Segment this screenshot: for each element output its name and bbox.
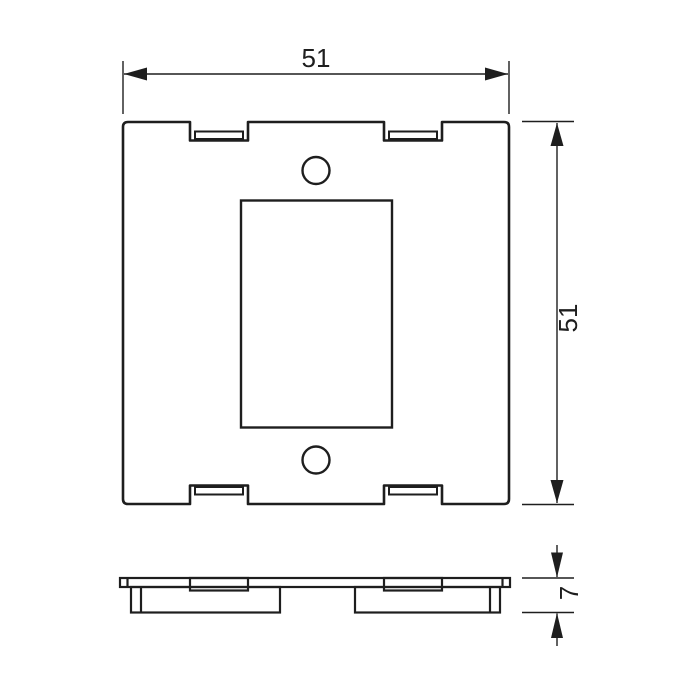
mounting-frame-drawing: 51 51 7: [0, 0, 700, 700]
side-plate-profile: [120, 578, 510, 587]
arrowhead-right: [485, 68, 508, 81]
side-latch-tab-left: [190, 578, 248, 591]
arrowhead-up: [551, 123, 564, 146]
side-view: [120, 578, 510, 613]
arrowhead-down: [551, 553, 563, 578]
dimension-thickness: 7: [522, 545, 584, 646]
latch-tab-top-right: [389, 132, 437, 140]
thickness-dimension-label: 7: [554, 586, 584, 600]
dimension-width: 51: [123, 43, 509, 114]
arrowhead-up: [551, 613, 563, 638]
latch-tab-top-left: [195, 132, 243, 140]
side-latch-tab-right: [384, 578, 442, 591]
latch-tab-bottom-left: [195, 487, 243, 495]
technical-drawing-sheet: 51 51 7: [0, 0, 700, 700]
arrowhead-down: [551, 480, 564, 503]
width-dimension-label: 51: [302, 43, 331, 73]
height-dimension-label: 51: [553, 304, 583, 333]
dimension-height: 51: [522, 122, 583, 505]
latch-tab-bottom-right: [389, 487, 437, 495]
arrowhead-left: [124, 68, 147, 81]
front-view: [123, 122, 509, 504]
